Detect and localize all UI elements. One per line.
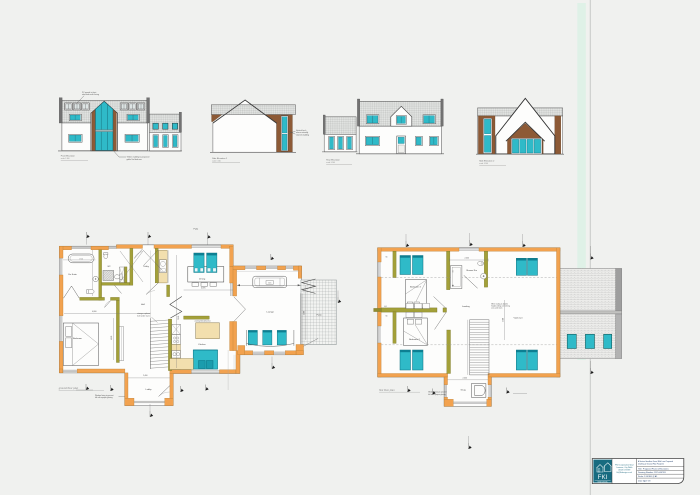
svg-text:attached south facing: attached south facing <box>82 93 99 96</box>
svg-text:first floor plan: first floor plan <box>379 388 395 392</box>
svg-text:Bedroom 2: Bedroom 2 <box>409 338 420 341</box>
svg-text:Sn: Sn <box>386 315 388 317</box>
svg-text:scale 1:100: scale 1:100 <box>61 158 70 160</box>
svg-text:3,000: 3,000 <box>304 311 306 315</box>
svg-text:2,400: 2,400 <box>463 377 468 379</box>
svg-text:Side Elevation 2: Side Elevation 2 <box>479 160 495 163</box>
svg-text:HOME DESIGN: HOME DESIGN <box>598 482 608 484</box>
svg-text:scale 1:100: scale 1:100 <box>479 163 488 165</box>
svg-text:scale 1:100: scale 1:100 <box>212 161 221 163</box>
svg-text:Sn: Sn <box>386 256 388 258</box>
svg-text:area and stairs: area and stairs <box>491 307 502 310</box>
svg-text:2,400: 2,400 <box>143 375 148 377</box>
svg-text:Kitchen: Kitchen <box>198 343 206 346</box>
svg-text:2,600: 2,600 <box>502 318 504 322</box>
svg-text:Lounge: Lounge <box>267 311 275 313</box>
svg-text:4,695: 4,695 <box>201 287 206 289</box>
svg-text:5005: 5005 <box>268 282 272 284</box>
svg-text:Bedroom 3: Bedroom 3 <box>410 285 421 288</box>
svg-text:4,05: 4,05 <box>384 306 387 308</box>
svg-text:worktop/breakfast bar: worktop/breakfast bar <box>195 320 212 323</box>
svg-text:4,800: 4,800 <box>92 311 97 313</box>
svg-text:Front Elevation: Front Elevation <box>61 155 76 158</box>
svg-text:Hall: Hall <box>141 304 145 306</box>
svg-text:Patio: Patio <box>317 314 323 317</box>
svg-text:FKI Incorporated, Ideal: FKI Incorporated, Ideal <box>615 463 634 466</box>
svg-text:En Suite: En Suite <box>69 273 78 276</box>
svg-text:built under stairs: built under stairs <box>137 314 150 317</box>
svg-text:Lowenac, City Walls: Lowenac, City Walls <box>616 466 632 469</box>
svg-text:stained cladding: stained cladding <box>296 133 309 136</box>
svg-text:Rear Elevation: Rear Elevation <box>326 159 340 162</box>
svg-text:ground floor plan: ground floor plan <box>59 386 79 390</box>
svg-text:Date: April '18: Date: April '18 <box>638 480 651 483</box>
svg-text:fall with opaque glazing: fall with opaque glazing <box>428 393 446 396</box>
svg-text:Drawing Number: 1117a/GP/03: Drawing Number: 1117a/GP/03 <box>638 472 666 474</box>
svg-text:2,400: 2,400 <box>465 258 470 260</box>
svg-text:Snug: Snug <box>461 389 467 391</box>
svg-text:900: 900 <box>453 270 455 273</box>
svg-text:FKI: FKI <box>598 474 608 481</box>
svg-text:Shower Rm: Shower Rm <box>466 269 477 272</box>
svg-text:7,100: 7,100 <box>178 316 180 320</box>
svg-text:Title: Proposed Plans & Eleva: Title: Proposed Plans & Elevations <box>638 467 669 470</box>
svg-text:gable 2nd bed over: gable 2nd bed over <box>127 159 143 161</box>
svg-text:Landing: Landing <box>462 306 471 308</box>
svg-text:4,100: 4,100 <box>111 336 113 340</box>
svg-text:Side Elevation 1: Side Elevation 1 <box>212 157 228 160</box>
svg-text:Void over: Void over <box>514 317 523 320</box>
svg-text:scale 1:100: scale 1:100 <box>326 162 335 164</box>
svg-text:fall with opaque glazing: fall with opaque glazing <box>95 396 113 399</box>
svg-text:Dining: Dining <box>199 279 206 281</box>
svg-text:Dwelling at Ground Floor Footp: Dwelling at Ground Floor Footprint <box>638 462 664 465</box>
svg-text:Utility: Utility <box>144 265 150 268</box>
svg-text:Scale: 1:50/100 @ A1: Scale: 1:50/100 @ A1 <box>638 475 658 478</box>
svg-text:Lobby: Lobby <box>146 389 153 391</box>
svg-text:Bedroom: Bedroom <box>73 337 82 340</box>
svg-text:fki@fkidesign.co.uk: fki@fkidesign.co.uk <box>617 472 633 474</box>
